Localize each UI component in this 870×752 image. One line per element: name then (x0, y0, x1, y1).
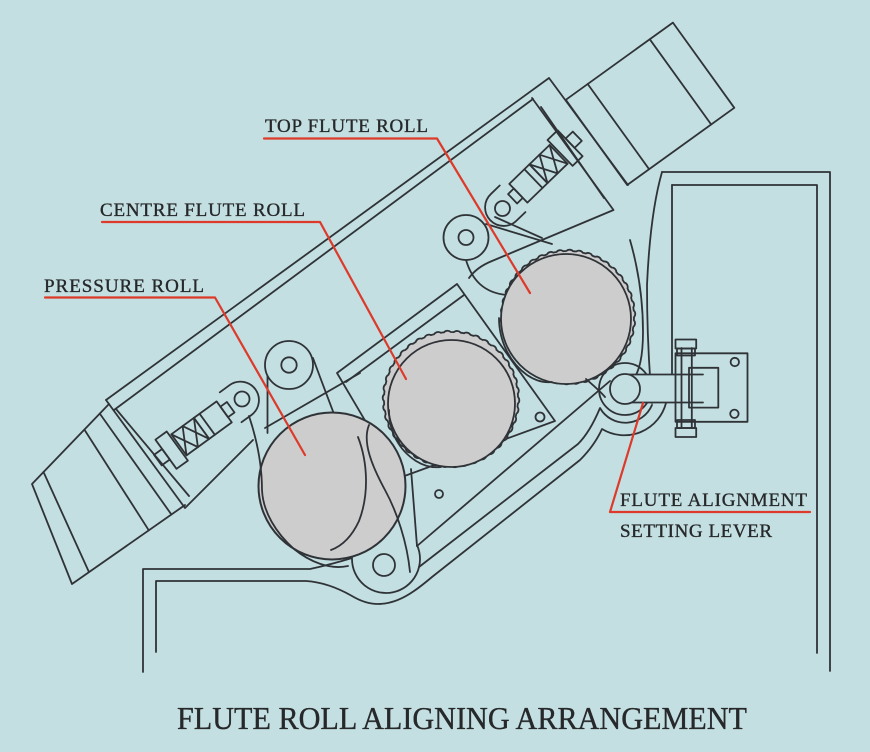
svg-text:PRESSURE ROLL: PRESSURE ROLL (44, 276, 204, 297)
svg-text:TOP FLUTE ROLL: TOP FLUTE ROLL (265, 116, 428, 137)
svg-text:FLUTE ROLL ALIGNING ARRANGEMEN: FLUTE ROLL ALIGNING ARRANGEMENT (177, 700, 747, 736)
svg-text:CENTRE FLUTE ROLL: CENTRE FLUTE ROLL (100, 200, 305, 221)
svg-text:SETTING LEVER: SETTING LEVER (620, 521, 772, 542)
svg-text:FLUTE ALIGNMENT: FLUTE ALIGNMENT (620, 490, 807, 511)
